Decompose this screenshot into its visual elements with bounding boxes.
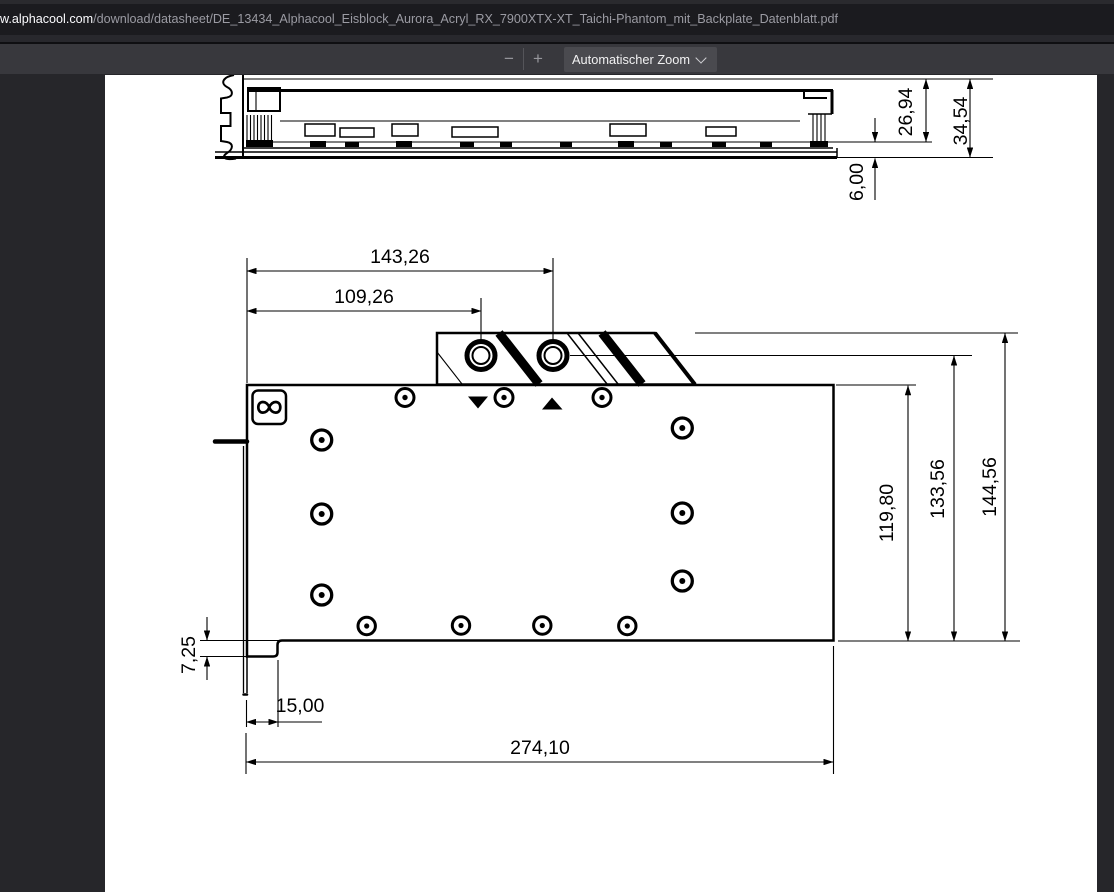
dim-label-144-56: 144,56 — [979, 457, 1001, 517]
flow-out-icon — [542, 398, 563, 410]
dim-label-119-80: 119,80 — [876, 484, 898, 542]
terminal-block — [437, 333, 695, 385]
port-1-icon — [467, 342, 495, 370]
chevron-down-icon — [695, 52, 706, 63]
dim-label-143-26: 143,26 — [370, 246, 430, 268]
pdf-viewer-toolbar: − + Automatischer Zoom — [0, 44, 1114, 74]
side-view: 26,94 34,54 6,00 — [215, 75, 993, 201]
alphacool-logo-icon — [253, 391, 287, 425]
url-domain: w.alphacool.com — [0, 12, 93, 26]
side-connector-fins — [247, 115, 272, 140]
dim-label-109-26: 109,26 — [334, 286, 394, 308]
dim-label-133-56: 133,56 — [927, 459, 949, 519]
browser-window: w.alphacool.com/download/datasheet/DE_13… — [0, 0, 1114, 892]
dim-label-15-00: 15,00 — [276, 695, 325, 717]
zoom-controls: − + Automatischer Zoom — [495, 44, 717, 74]
zoom-in-button[interactable]: + — [524, 45, 552, 73]
dim-label-34-54: 34,54 — [950, 96, 972, 145]
port-2-icon — [539, 342, 567, 370]
technical-drawing: 26,94 34,54 6,00 — [105, 75, 1097, 892]
dim-label-26-94: 26,94 — [895, 87, 917, 136]
front-top-dimensions: 143,26 109,26 — [247, 246, 553, 383]
screw-holes — [312, 389, 693, 635]
side-pci-bracket — [221, 75, 236, 159]
url-path: /download/datasheet/DE_13434_Alphacool_E… — [93, 12, 838, 26]
address-bar[interactable]: w.alphacool.com/download/datasheet/DE_13… — [0, 4, 1114, 35]
side-components — [305, 124, 736, 137]
zoom-mode-select[interactable]: Automatischer Zoom — [564, 47, 717, 72]
dim-label-7-25: 7,25 — [178, 636, 200, 674]
front-view: 143,26 109,26 119,80 — [178, 246, 1020, 774]
dim-label-6-00: 6,00 — [846, 163, 868, 201]
dim-label-274-10: 274,10 — [510, 737, 570, 759]
pdf-page: 26,94 34,54 6,00 — [105, 75, 1097, 892]
zoom-out-button[interactable]: − — [495, 45, 523, 73]
pdf-viewer-content[interactable]: 26,94 34,54 6,00 — [0, 74, 1114, 892]
flow-in-icon — [468, 397, 488, 409]
zoom-mode-value: Automatischer Zoom — [564, 52, 697, 67]
side-dimensions: 26,94 34,54 6,00 — [846, 80, 972, 201]
chrome-gap — [0, 35, 1114, 42]
